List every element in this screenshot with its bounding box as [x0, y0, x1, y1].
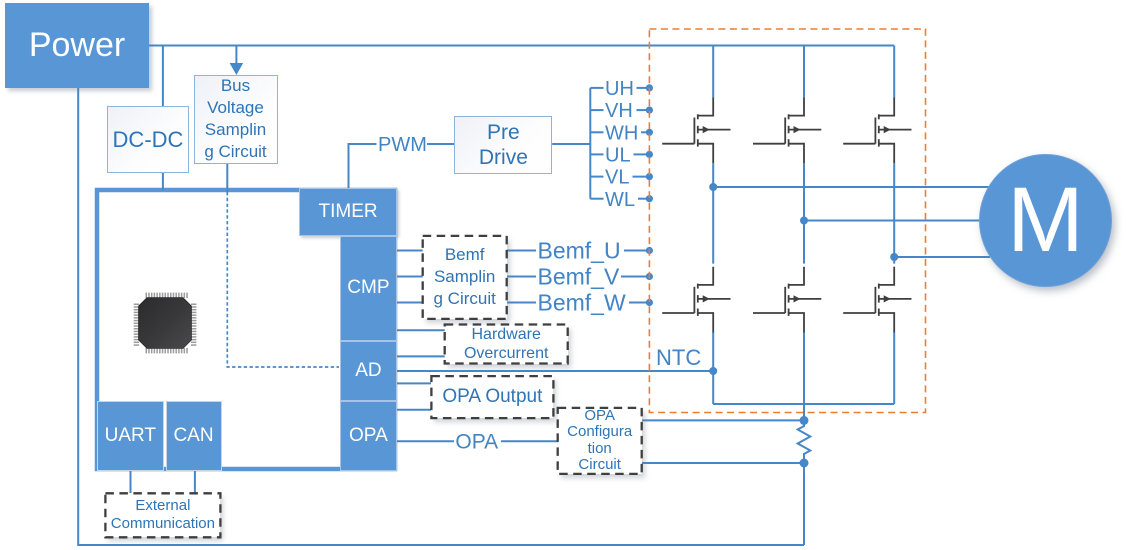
svg-text:PWM: PWM — [378, 134, 427, 156]
svg-text:UH: UH — [605, 78, 634, 100]
svg-text:VH: VH — [605, 100, 633, 122]
svg-text:WH: WH — [605, 122, 638, 144]
svg-text:Bemf_W: Bemf_W — [538, 290, 626, 316]
svg-text:VL: VL — [605, 167, 629, 189]
svg-text:Bemf_U: Bemf_U — [538, 238, 621, 264]
svg-text:Bemf_V: Bemf_V — [538, 264, 620, 290]
svg-text:OPA: OPA — [455, 431, 498, 454]
svg-text:UL: UL — [605, 145, 631, 167]
svg-text:WL: WL — [605, 189, 635, 211]
svg-text:NTC: NTC — [656, 345, 701, 370]
